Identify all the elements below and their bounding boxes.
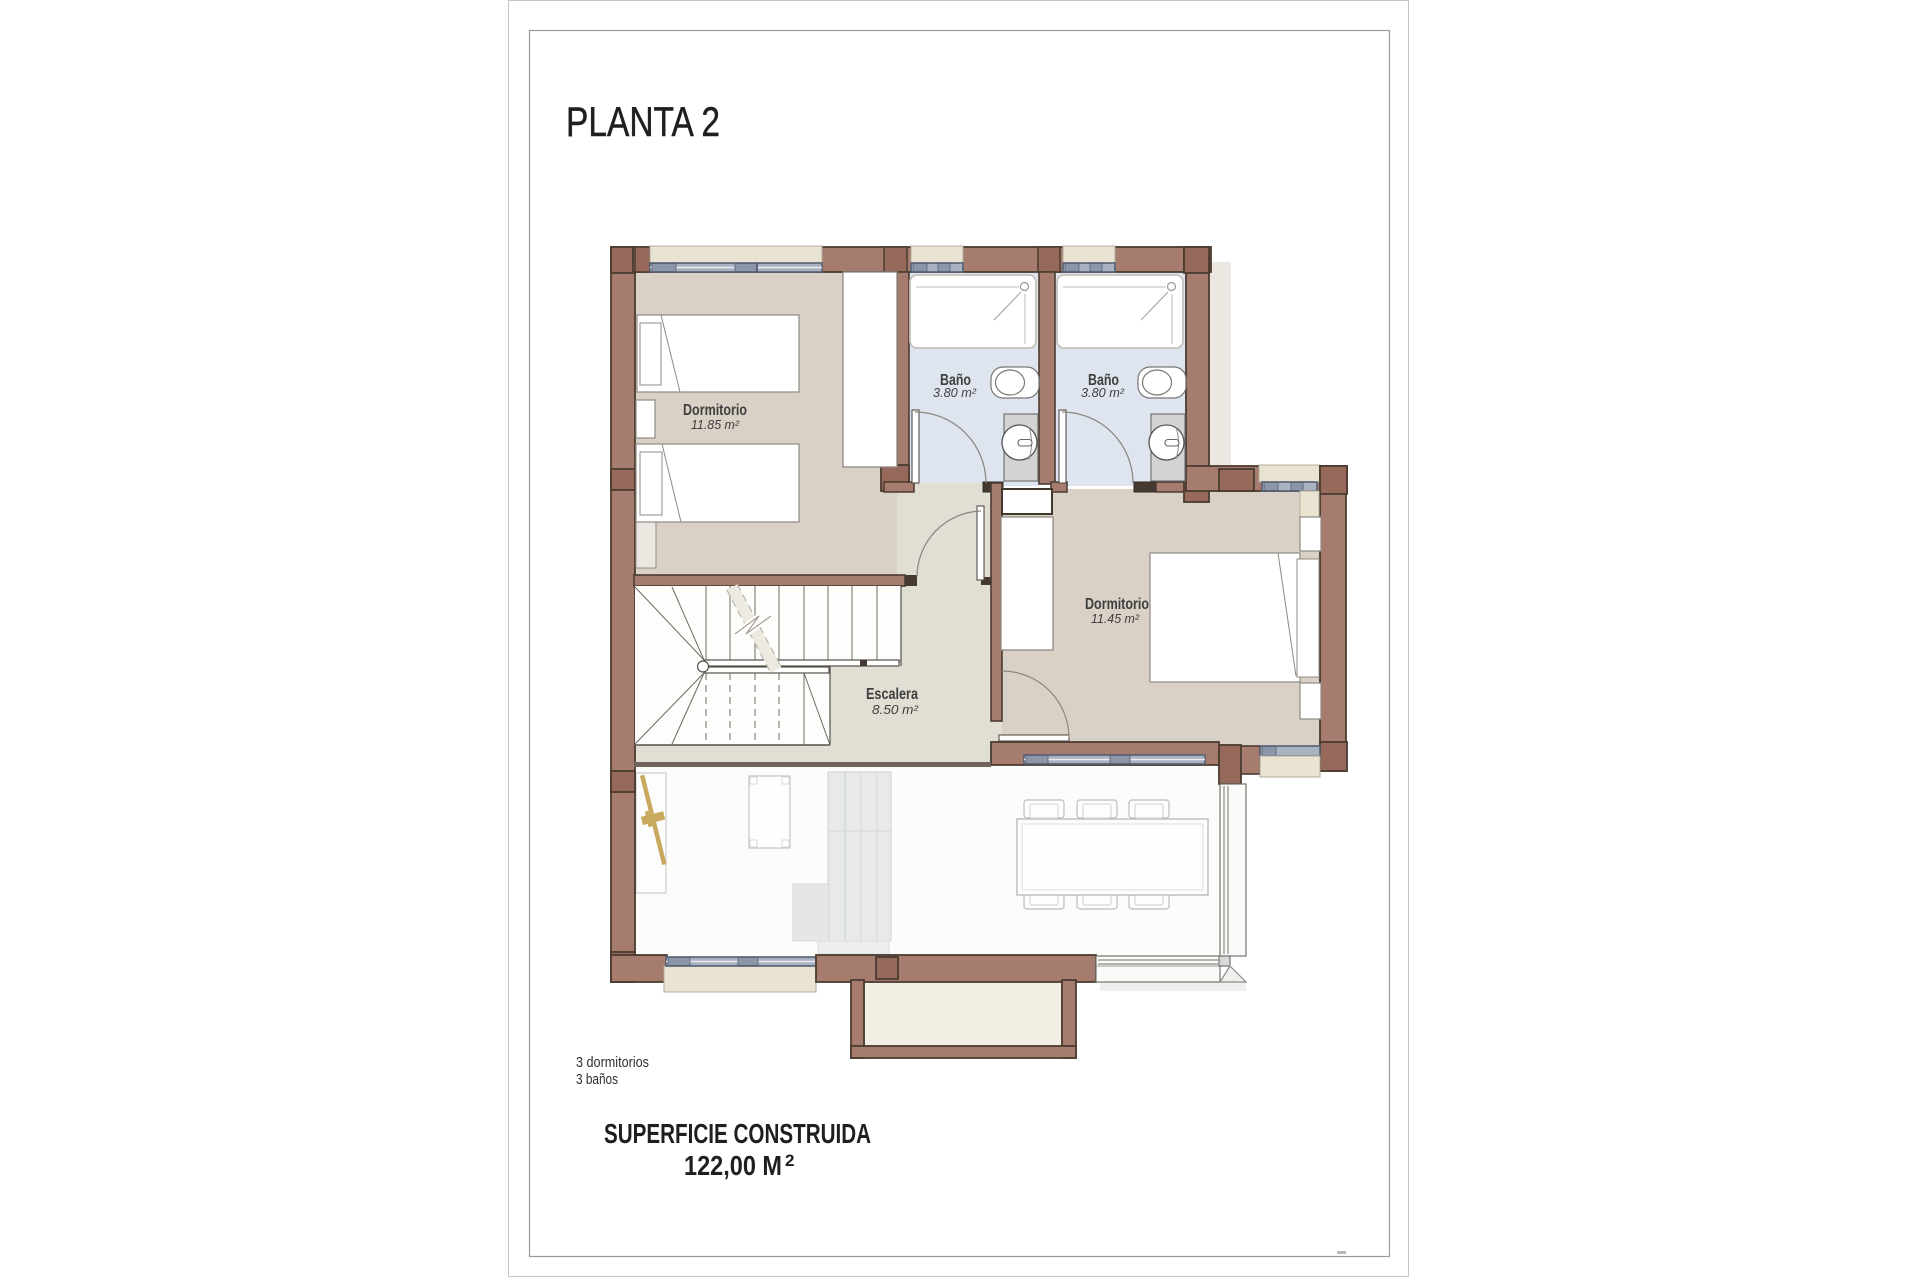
- svg-text:3 dormitorios: 3 dormitorios: [576, 1054, 649, 1071]
- svg-text:3.80 m²: 3.80 m²: [1081, 385, 1125, 400]
- svg-text:122,00 M: 122,00 M: [684, 1150, 782, 1181]
- svg-text:Escalera: Escalera: [866, 686, 918, 703]
- svg-text:11.85 m²: 11.85 m²: [691, 417, 740, 432]
- svg-text:3.80 m²: 3.80 m²: [933, 385, 977, 400]
- svg-text:SUPERFICIE CONSTRUIDA: SUPERFICIE CONSTRUIDA: [604, 1118, 871, 1149]
- svg-text:2: 2: [785, 1151, 794, 1170]
- svg-text:PLANTA 2: PLANTA 2: [566, 98, 720, 145]
- svg-text:3 baños: 3 baños: [576, 1071, 618, 1088]
- svg-text:8.50 m²: 8.50 m²: [872, 702, 919, 717]
- svg-text:11.45 m²: 11.45 m²: [1091, 611, 1140, 626]
